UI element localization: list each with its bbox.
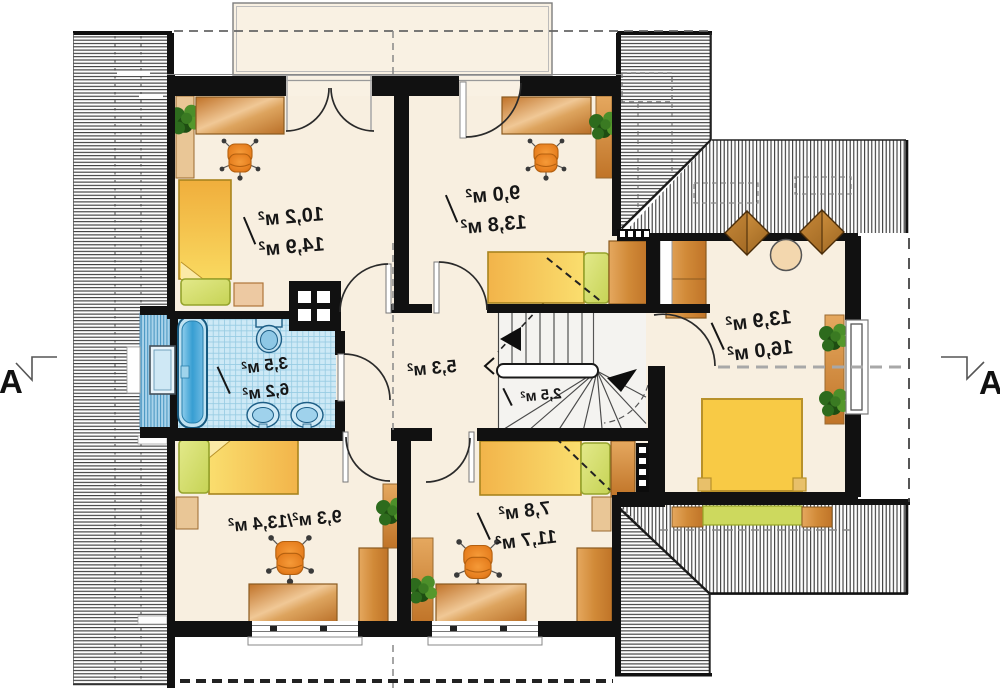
svg-text:2,5 м2: 2,5 м2 xyxy=(520,385,562,406)
svg-text:A: A xyxy=(0,363,23,400)
svg-text:A: A xyxy=(979,364,1000,401)
